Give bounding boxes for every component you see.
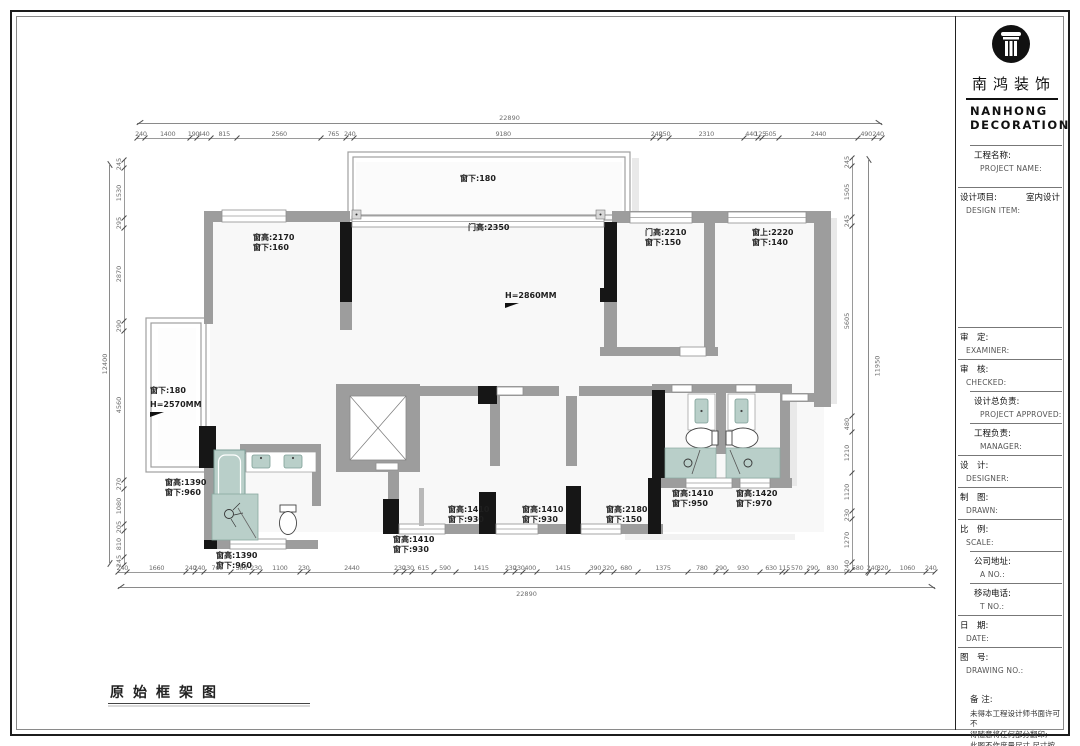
annotation-window-bottom-2: 窗高:1410窗下:930 [448,505,489,526]
note-title: 备 注: [970,693,1062,705]
field-drawn: 制 图: DRAWN: [958,487,1062,519]
dim-total-right: 11950 [868,160,869,572]
field-designer: 设 计: DESIGNER: [958,455,1062,487]
annotation-window-bottom-4: 窗高:2180窗下:150 [606,505,647,526]
design-item-value: 室内设计 [1026,191,1060,203]
drawing-title-underline [108,703,310,704]
level-arrow-icon [150,412,164,417]
field-company-address: 公司地址: A NO.: [970,551,1062,583]
field-mobile-phone: 移动电话: T NO.: [970,583,1062,615]
toilet-left [280,505,297,535]
nanhong-logo-icon [991,24,1031,64]
sink-counter-left [246,452,316,472]
title-block-rule [966,98,1058,100]
dim-total-bottom: 22890 [118,587,935,588]
dim-total-left: 12400 [109,165,110,563]
drawing-sheet: 窗下:180 门高:2350 窗高:2170窗下:160 门高:2210窗下:1… [0,0,1080,746]
title-block-note: 备 注: 未得本工程设计师书面许可不 得随意将任何部分翻印; 此图不作度量尺寸,… [970,693,1062,746]
field-scale: 比 例: SCALE: [958,519,1062,551]
dim-total-top-label: 22890 [497,114,522,122]
floor-plan-area: 窗下:180 门高:2350 窗高:2170窗下:160 门高:2210窗下:1… [0,0,1080,746]
level-arrow-icon [505,303,519,308]
dim-chain-bottom: 2401660240240760580230110023024402302306… [118,572,935,573]
annotation-window-topleft: 窗高:2170窗下:160 [253,233,294,254]
dim-chain-right: 24515052455605480121011202301270240 [852,158,853,570]
dim-chain-left: 2451530295287029045602701080205810245 [124,160,125,565]
shower-left [212,494,258,540]
field-date: 日 期: DATE: [958,615,1062,647]
field-drawing-no: 图 号: DRAWING NO.: [958,647,1062,679]
title-block: 南鸿装饰 NANHONG DECORATION 工程名称: PROJECT NA… [955,16,1066,730]
title-block-spacer [956,219,1066,327]
dim-chain-top: 2401400190440815256076524091802402502310… [137,138,882,139]
floor-plan-svg [0,0,1080,746]
annotation-ceiling-height-left: H=2570MM [150,400,202,417]
annotation-window-bottomright-2: 窗高:1420窗下:970 [736,489,777,510]
annotation-window-bottomright-1: 窗高:1410窗下:950 [672,489,713,510]
elevator-shaft [350,396,406,460]
annotation-ceiling-height-main: H=2860MM [505,291,557,308]
field-project-name: 工程名称: PROJECT NAME: [970,145,1062,177]
annotation-window-left-1: 窗高:1390窗下:960 [165,478,206,499]
dim-total-bottom-label: 22890 [514,590,539,598]
annotation-top-door-height: 门高:2350 [468,223,509,233]
annotation-window-bottom-3: 窗高:1410窗下:930 [522,505,563,526]
annotation-window-topright: 窗上:2220窗下:140 [752,228,793,249]
field-checked: 审 核: CHECKED: [958,359,1062,391]
company-name-cn: 南鸿装饰 [956,73,1066,94]
drawing-title: 原始框架图 [110,682,225,702]
company-name-en: NANHONG DECORATION [970,105,1066,133]
dim-total-right-label: 11950 [874,354,882,379]
field-design-item: 设计项目: 室内设计 DESIGN ITEM: [958,187,1062,219]
annotation-balcony-sill: 窗下:180 [460,174,496,184]
annotation-left-balcony-sill: 窗下:180 [150,386,186,396]
annotation-window-bottom-1: 窗高:1410窗下:930 [393,535,434,556]
field-manager: 工程负责: MANAGER: [970,423,1062,455]
dim-total-top: 22890 [137,123,882,124]
thin-partitions [419,488,424,526]
field-examiner: 审 定: EXAMINER: [958,327,1062,359]
annotation-door-topright: 门高:2210窗下:150 [645,228,686,249]
dim-total-left-label: 12400 [101,352,109,377]
field-project-approved: 设计总负责: PROJECT APPROVED: [970,391,1062,423]
